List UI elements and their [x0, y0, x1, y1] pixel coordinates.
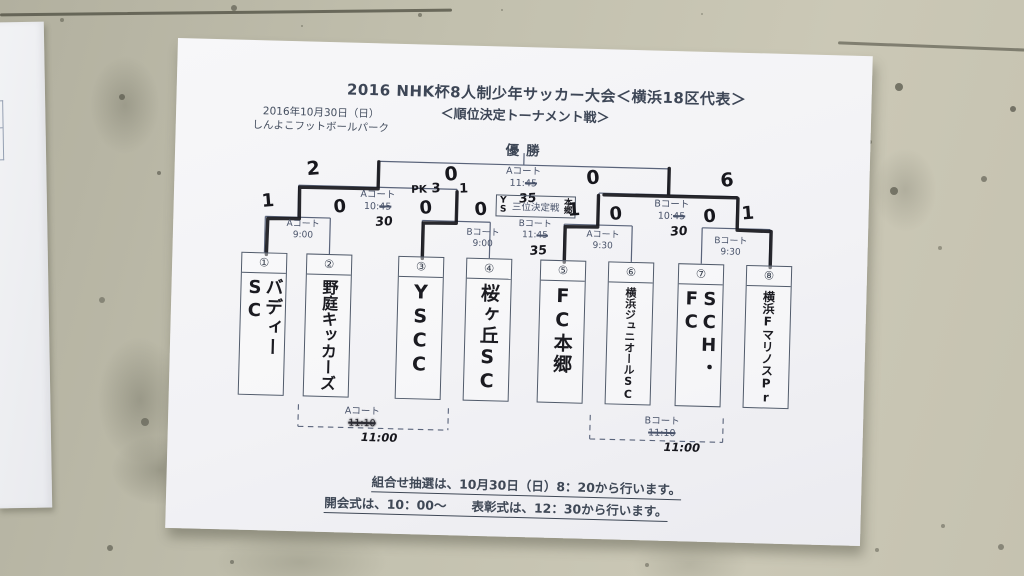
team-2-seed: ②	[307, 254, 352, 275]
consolation2-time-struck: 11:10	[622, 427, 702, 441]
semifinal2-label: Bコート 10:45 30	[639, 198, 704, 239]
semifinal1-time: 10:45	[345, 200, 409, 214]
team-7-name: SCH・FC	[680, 288, 719, 404]
third-place-times: Bコート 11:45 35	[494, 218, 575, 259]
semifinal1-label: Aコート 10:45 30	[345, 188, 410, 229]
score-semifinal2-right: 6	[720, 171, 735, 191]
match3-label: Aコート 9:30	[575, 229, 632, 253]
score-match4-right: 1	[741, 205, 755, 224]
team-box-4: ④ 桜ヶ丘SC	[463, 258, 513, 402]
team-5-name: FC本郷	[551, 285, 572, 375]
team-box-8: ⑧ 横浜FマリノスPr	[743, 265, 793, 409]
team-6-seed: ⑥	[609, 262, 654, 283]
consolation1-label: Aコート 11:10 11:00	[321, 405, 402, 446]
semifinal2-time: 10:45	[639, 210, 703, 224]
third-place-left-team-handwritten: YS	[499, 197, 508, 214]
team-box-2: ② 野庭キッカーズ	[303, 253, 353, 397]
wall-speckles	[0, 0, 4, 4]
photo-scene: 2016 NHK杯8人制少年サッカー大会＜横浜18区代表＞ ＜順位決定トーナメン…	[0, 0, 1024, 576]
team-box-1: ① バディーSC	[238, 252, 288, 396]
third-place-time-handwritten: 35	[529, 242, 547, 258]
team-3-seed: ③	[399, 257, 444, 278]
match4-label: Bコート 9:30	[702, 236, 759, 260]
match3-time: 9:30	[575, 241, 631, 254]
score-match2-pk-right: 1	[459, 182, 468, 195]
match1-time: 9:00	[275, 230, 331, 243]
score-semifinal1-left: 2	[306, 159, 321, 179]
adjacent-bracket-fragment	[0, 100, 4, 160]
consolation2-label: Bコート 11:10 11:00	[621, 415, 702, 456]
score-match2-left: 0	[419, 199, 433, 218]
score-match1-right: 0	[333, 198, 347, 217]
score-match2-pk-left: PK 3	[411, 182, 441, 196]
team-box-7: ⑦ SCH・FC	[675, 263, 725, 407]
tournament-poster: 2016 NHK杯8人制少年サッカー大会＜横浜18区代表＞ ＜順位決定トーナメン…	[165, 38, 873, 546]
semifinal1-time-handwritten: 30	[375, 213, 393, 229]
team-1-seed: ①	[242, 253, 287, 274]
score-match4-left: 0	[703, 208, 717, 227]
semifinal2-time-handwritten: 30	[670, 223, 688, 239]
team-4-name: 桜ヶ丘SC	[476, 283, 498, 394]
team-8-seed: ⑧	[747, 266, 792, 287]
score-semifinal2-left: 0	[586, 168, 601, 188]
score-match1-left: 1	[261, 192, 275, 211]
score-match2-right: 0	[474, 201, 488, 220]
team-box-6: ⑥ 横浜ジュニオールSC	[605, 261, 655, 405]
team-box-5: ⑤ FC本郷	[537, 260, 587, 404]
team-8-name: 横浜FマリノスPr	[760, 290, 775, 404]
consolation2-time-handwritten: 11:00	[662, 440, 702, 455]
team-1-name: バディーSC	[243, 277, 282, 393]
consolation1-time-struck: 11:10	[322, 417, 402, 431]
final-time: 11:45	[487, 177, 559, 191]
score-match3-left: 1	[567, 201, 581, 220]
consolation1-time-handwritten: 11:00	[359, 430, 399, 445]
adjacent-poster-edge	[0, 22, 52, 509]
third-place-label: 三位決定戦	[512, 199, 560, 214]
team-5-seed: ⑤	[541, 261, 586, 282]
team-box-3: ③ YSCC	[395, 256, 445, 400]
team-3-name: YSCC	[409, 281, 431, 377]
score-semifinal1-right: 0	[444, 165, 459, 185]
team-2-name: 野庭キッカーズ	[318, 279, 337, 391]
team-7-seed: ⑦	[679, 264, 724, 285]
team-6-name: 横浜ジュニオールSC	[622, 287, 636, 401]
match4-time: 9:30	[702, 247, 758, 260]
team-4-seed: ④	[467, 259, 512, 280]
match1-label: Aコート 9:00	[275, 219, 332, 243]
third-place-time: 11:45	[495, 230, 575, 243]
score-match3-right: 0	[609, 205, 623, 224]
third-place-box: YS 三位決定戦 本郷	[495, 194, 576, 218]
